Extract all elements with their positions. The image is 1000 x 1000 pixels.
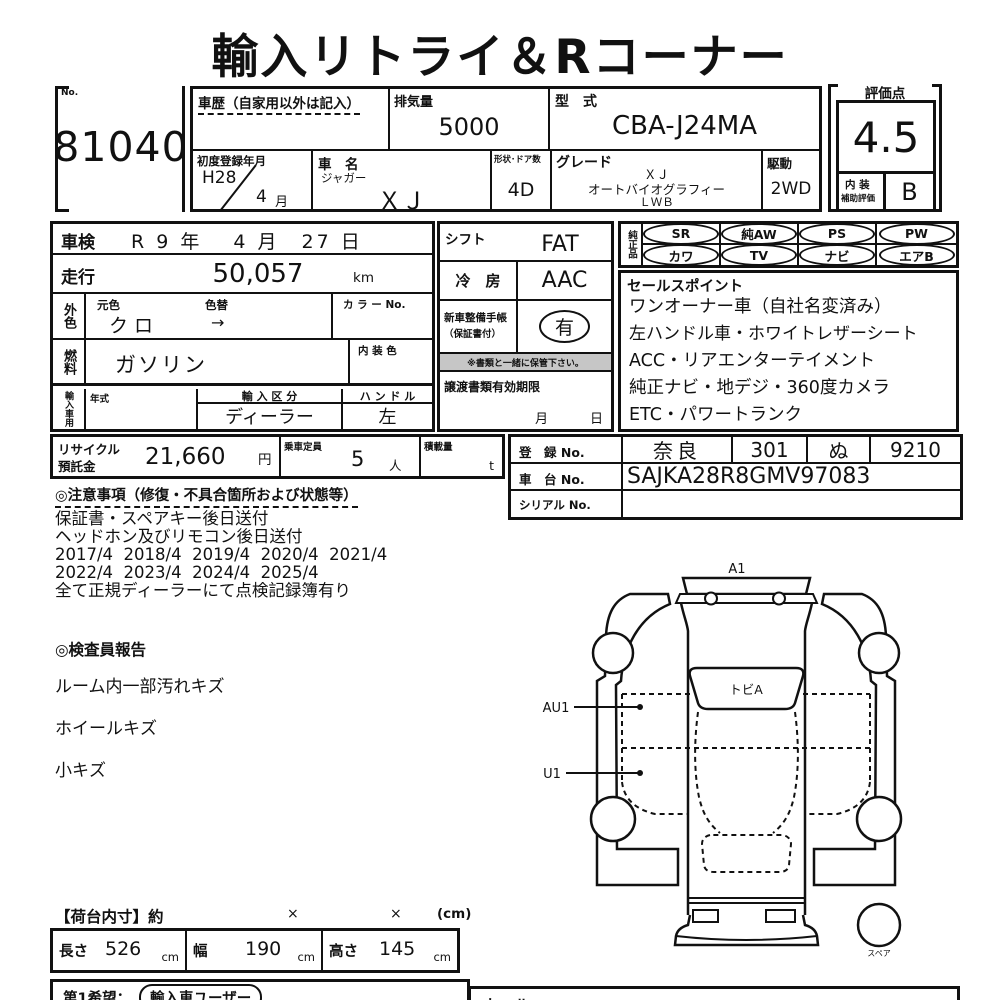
notes-line-2: ヘッドホン及びリモコン後日送付 (55, 528, 387, 546)
service-book-value-cell: 有 (518, 301, 611, 352)
front-damage-label: A1 (728, 562, 745, 577)
sheet-title: 輸入リトライ＆Rコーナー (120, 18, 880, 87)
import-class-value: ディーラー (198, 404, 341, 428)
color-no-cell: カ ラ ー No. (331, 294, 432, 338)
transfer-day-label: 日 (590, 408, 603, 427)
model-code-label: 型 式 (555, 91, 597, 111)
handle-cell: ハ ン ド ル 左 (343, 389, 432, 429)
interior-color-cell: 内 装 色 (348, 340, 432, 383)
history-label: 車歴（自家用以外は記入） (198, 92, 360, 115)
shaken-row: 車検 R 9 年 4 月 27 日 (53, 224, 432, 255)
fuel-row: 燃料 ガソリン 内 装 色 (53, 340, 432, 386)
grade-cell: グレード ＸＪ オートバイオグラフィー ＬＷＢ (552, 151, 763, 209)
ac-row: 冷 房 AAC (440, 262, 611, 301)
car-damage-diagram: スペア A1 トビA AU1 U1 (530, 557, 1000, 967)
genuine-badge-sr: SR (643, 223, 719, 245)
sales-point-line-3: ACC・リアエンターテイメント (629, 348, 875, 375)
service-book-note: ※書類と一緒に保管下さい。 (440, 354, 611, 372)
import-row: 輸入車用 年式 輸 入 区 分 ディーラー ハ ン ド ル 左 (53, 389, 432, 429)
inspector-title: ◎検査員報告 (55, 638, 225, 660)
interior-label-cell: 内 装 補助評価 (839, 174, 886, 209)
front-bumper-lip (676, 594, 817, 603)
sales-point-line-4: 純正ナビ・地デジ・360度カメラ (629, 375, 890, 402)
drive-value: 2WD (763, 179, 819, 199)
recycle-label-2: 預託金 (58, 456, 96, 475)
rear-light-left (693, 910, 718, 922)
no-label: No. (61, 88, 78, 98)
left-rear-damage-label: U1 (543, 767, 561, 782)
sales-points-box: セールスポイント ワンオーナー車（自社名変済み） 左ハンドル車・ホワイトレザーシ… (618, 270, 959, 432)
lot-number: 81040 (60, 112, 182, 182)
body-right-edge (805, 603, 812, 915)
mileage-label: 走行 (61, 263, 95, 288)
capacity-cell: 乗車定員 5 人 (281, 437, 421, 476)
cargo-length-cell: 長さ 526 cm (53, 931, 187, 970)
cargo-length-value: 526 (105, 938, 141, 960)
front-left-wheel (593, 633, 633, 673)
fuel-label: 燃料 (53, 340, 86, 383)
capacity-value: 5 (351, 447, 364, 471)
first-reg-month: 4 (256, 187, 267, 207)
ac-value: AAC (518, 262, 611, 299)
chassis-value: SAJKA28R8GMV97083 (623, 464, 960, 489)
color-change-value: → (211, 313, 224, 332)
displacement-cell: 排気量 5000 (390, 89, 550, 151)
first-reg-year: H28 (202, 168, 236, 188)
capacity-label: 乗車定員 (284, 439, 322, 453)
displacement-value: 5000 (390, 113, 548, 141)
inspector-line-3: 小キズ (55, 756, 225, 781)
roof-dashed-lines (622, 694, 870, 872)
cargo-width-unit: cm (297, 950, 315, 964)
orig-color-value: クロ (109, 311, 159, 338)
notes-line-5: 全て正規ディーラーにて点検記録簿有り (55, 582, 387, 600)
first-wish-label: 第1希望： (63, 987, 131, 1000)
notes-line-4: 2022/4 2023/4 2024/4 2025/4 (55, 564, 387, 582)
serial-row: シリアル No. (511, 491, 960, 517)
cargo-width-label: 幅 (193, 940, 208, 961)
fuel-value: ガソリン (115, 349, 207, 379)
front-right-wheel (859, 633, 899, 673)
notes-title: ◎注意事項（修復・不具合箇所および状態等） (55, 484, 358, 508)
drive-cell: 駆動 2WD (763, 151, 819, 209)
grade-line-3: ＬＷＢ (552, 194, 761, 210)
registration-number: 9210 (871, 437, 960, 462)
mid-detail-table: シフト FAT 冷 房 AAC 新車整備手帳 （保証書付） 有 ※書類と一緒に保… (437, 221, 614, 432)
cargo-times-1: × (287, 906, 299, 922)
cargo-width-value: 190 (245, 938, 281, 960)
cargo-length-unit: cm (161, 950, 179, 964)
bottom-right-partial-text: セール (485, 994, 530, 1000)
interior-label-line1: 内 装 (845, 177, 870, 192)
year-cell: 年式 (86, 389, 198, 429)
genuine-badge-aw: 純AW (721, 223, 797, 245)
sales-point-line-1: ワンオーナー車（自社名変済み） (629, 294, 892, 321)
first-wish-value: 輸入車ユーザー (139, 984, 262, 1000)
model-code-value: CBA-J24MA (550, 111, 819, 141)
score-label: 評価点 (828, 84, 942, 100)
cargo-height-value: 145 (379, 938, 415, 960)
color-no-label: カ ラ ー No. (343, 297, 405, 312)
recycle-cell: リサイクル 預託金 21,660 円 (53, 437, 281, 476)
import-section-label: 輸入車用 (53, 389, 86, 429)
notes-section: ◎注意事項（修復・不具合箇所および状態等） 保証書・スペアキー後日送付 ヘッドホ… (55, 484, 387, 600)
cargo-height-label: 高さ (329, 940, 358, 961)
windshield-damage-label: トビA (729, 682, 763, 697)
score-box: 4.5 内 装 補助評価 B (836, 100, 936, 212)
handle-label: ハ ン ド ル (343, 389, 432, 404)
left-front-damage-label: AU1 (543, 701, 570, 716)
recycle-row: リサイクル 預託金 21,660 円 乗車定員 5 人 積載量 t (50, 434, 505, 479)
cargo-width-cell: 幅 190 cm (187, 931, 323, 970)
cargo-height-unit: cm (433, 950, 451, 964)
first-reg-month-unit: 月 (275, 191, 288, 210)
mileage-unit: km (353, 270, 374, 286)
interior-grade-value: B (886, 174, 933, 209)
cargo-height-cell: 高さ 145 cm (323, 931, 457, 970)
service-book-value: 有 (539, 310, 590, 343)
load-unit: t (489, 458, 494, 473)
chassis-label: 車 台 No. (511, 464, 623, 489)
registration-table: 登 録 No. 奈良 301 ぬ 9210 車 台 No. SAJKA28R8G… (508, 434, 963, 520)
inspector-line-2: ホイールキズ (55, 714, 225, 739)
registration-row: 登 録 No. 奈良 301 ぬ 9210 (511, 437, 960, 464)
auction-sheet-page: 輸入リトライ＆Rコーナー No. 81040 車歴（自家用以外は記入） 排気量 … (0, 0, 1000, 1000)
spare-tire (858, 904, 900, 946)
lot-divider-bar (182, 86, 185, 212)
registration-label: 登 録 No. (511, 437, 623, 462)
rear-left-wheel (591, 797, 635, 841)
genuine-badge-navi: ナビ (799, 244, 875, 266)
chassis-row: 車 台 No. SAJKA28R8GMV97083 (511, 464, 960, 491)
import-class-cell: 輸 入 区 分 ディーラー (198, 389, 343, 429)
car-model: ＸＪ (313, 181, 490, 216)
rear-light-right (766, 910, 795, 922)
cargo-length-label: 長さ (59, 940, 88, 961)
first-registration-cell: 初度登録年月 H28 4 月 (193, 151, 313, 209)
inspector-line-1: ルーム内一部汚れキズ (55, 672, 225, 697)
transfer-docs-row: 譲渡書類有効期限 月 日 (440, 372, 611, 429)
registration-kana: ぬ (808, 437, 871, 462)
capacity-unit: 人 (389, 455, 402, 474)
cargo-title: 【荷台内寸】約 (55, 905, 164, 927)
handle-value: 左 (343, 404, 432, 428)
service-book-row: 新車整備手帳 （保証書付） 有 (440, 301, 611, 354)
car-name-cell: 車 名 ジャガー ＸＪ (313, 151, 492, 209)
notes-line-3: 2017/4 2018/4 2019/4 2020/4 2021/4 (55, 546, 387, 564)
vehicle-header-table: 車歴（自家用以外は記入） 排気量 5000 型 式 CBA-J24MA 初度登録… (190, 86, 822, 212)
mileage-value: 50,057 (173, 259, 343, 289)
mileage-row: 走行 50,057 km (53, 255, 432, 294)
bottom-right-box: セール (468, 986, 960, 1000)
transfer-docs-label: 譲渡書類有効期限 (444, 378, 540, 395)
color-change-label: 色替 (205, 297, 228, 313)
front-washer-left (705, 593, 717, 605)
shaken-value: R 9 年 4 月 27 日 (131, 227, 363, 254)
shape-doors-cell: 形状･ドア数 4D (492, 151, 552, 209)
notes-line-1: 保証書・スペアキー後日送付 (55, 510, 387, 528)
history-cell: 車歴（自家用以外は記入） (193, 89, 390, 151)
left-front-leader-dot (637, 704, 643, 710)
sales-points-title: セールスポイント (627, 275, 743, 296)
genuine-badge-pw: PW (879, 223, 955, 245)
service-book-label1: 新車整備手帳 (444, 310, 507, 325)
interior-color-label: 内 装 色 (358, 343, 397, 358)
cargo-times-2: × (390, 906, 402, 922)
genuine-label: 純正品 (621, 224, 643, 265)
registration-area: 奈良 (623, 437, 733, 462)
service-book-label2: （保証書付） (444, 326, 501, 340)
displacement-label: 排気量 (394, 91, 433, 110)
left-detail-table: 車検 R 9 年 4 月 27 日 走行 50,057 km 外色 元色 色替 … (50, 221, 435, 432)
genuine-badge-airbag: エアB (879, 244, 955, 266)
genuine-parts-box: 純正品 SR 純AW PS PW カワ TV ナビ エアB (618, 221, 959, 268)
sales-point-line-2: 左ハンドル車・ホワイトレザーシート (629, 321, 918, 348)
exterior-color-label: 外色 (53, 294, 86, 338)
sales-point-line-5: ETC・パワートランク (629, 402, 802, 429)
serial-label: シリアル No. (511, 491, 623, 517)
registration-class: 301 (733, 437, 808, 462)
interior-label-line2: 補助評価 (841, 192, 875, 204)
front-washer-right (773, 593, 785, 605)
exterior-color-row: 外色 元色 色替 クロ → カ ラ ー No. (53, 294, 432, 340)
recycle-value: 21,660 (145, 444, 225, 470)
model-code-cell: 型 式 CBA-J24MA (550, 89, 819, 151)
shape-doors-value: 4D (492, 179, 550, 201)
cargo-unit-note: (cm) (437, 906, 471, 922)
rear-right-wheel (857, 797, 901, 841)
load-label: 積載量 (424, 439, 453, 453)
first-wish-box: 第1希望： 輸入車ユーザー (50, 979, 470, 1000)
cargo-table: 長さ 526 cm 幅 190 cm 高さ 145 cm (50, 928, 460, 973)
body-left-edge (681, 603, 688, 915)
rear-deck-lines (688, 898, 805, 903)
year-label: 年式 (90, 391, 109, 405)
shift-label: シフト (445, 228, 486, 248)
shift-value: FAT (515, 232, 605, 257)
recycle-unit: 円 (258, 448, 272, 468)
inspector-report-section: ◎検査員報告 ルーム内一部汚れキズ ホイールキズ 小キズ (55, 638, 225, 781)
transfer-month-label: 月 (535, 408, 548, 427)
left-rear-leader-dot (637, 770, 643, 776)
load-cell: 積載量 t (421, 437, 502, 476)
ac-label: 冷 房 (440, 262, 518, 299)
drive-label: 駆動 (767, 153, 792, 172)
rear-bumper-curve (676, 936, 817, 940)
spare-label: スペア (867, 949, 890, 958)
shift-row: シフト FAT (440, 224, 611, 262)
front-bumper (683, 578, 810, 594)
genuine-badge-kawa: カワ (643, 244, 719, 266)
shaken-label: 車検 (61, 228, 95, 253)
interior-grade-row: 内 装 補助評価 B (839, 171, 933, 209)
genuine-badge-ps: PS (799, 223, 875, 245)
score-value: 4.5 (839, 103, 933, 171)
service-book-label-cell: 新車整備手帳 （保証書付） (440, 301, 518, 352)
genuine-badge-tv: TV (721, 244, 797, 266)
shape-doors-label: 形状･ドア数 (494, 153, 541, 165)
import-class-label: 輸 入 区 分 (198, 389, 341, 404)
